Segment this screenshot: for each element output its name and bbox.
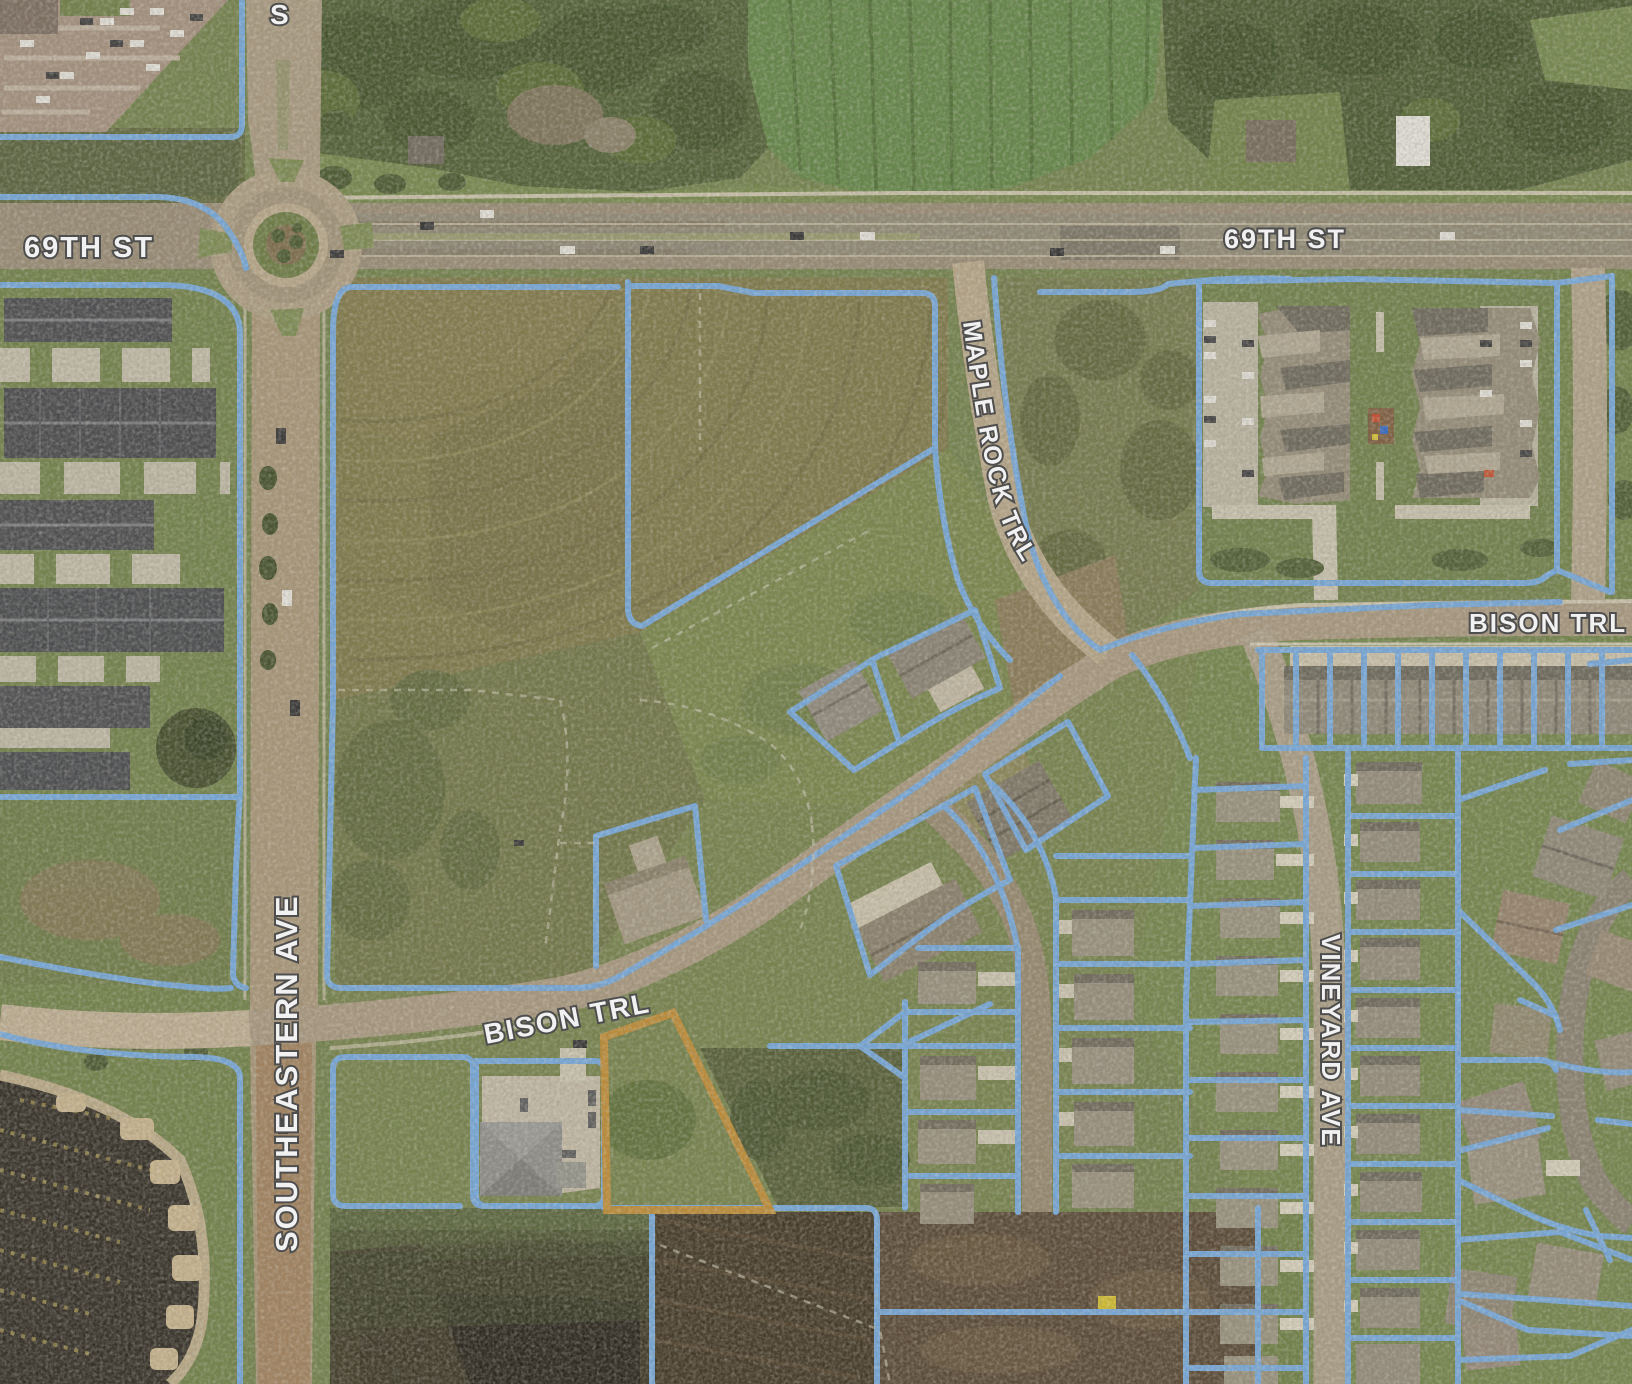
svg-text:BISON TRL: BISON TRL (1469, 608, 1627, 638)
svg-text:69TH ST: 69TH ST (1224, 224, 1346, 254)
svg-text:S: S (270, 0, 291, 30)
svg-text:69TH ST: 69TH ST (24, 232, 154, 264)
svg-text:SOUTHEASTERN AVE: SOUTHEASTERN AVE (269, 894, 304, 1252)
svg-text:VINEYARD AVE: VINEYARD AVE (1316, 934, 1346, 1148)
